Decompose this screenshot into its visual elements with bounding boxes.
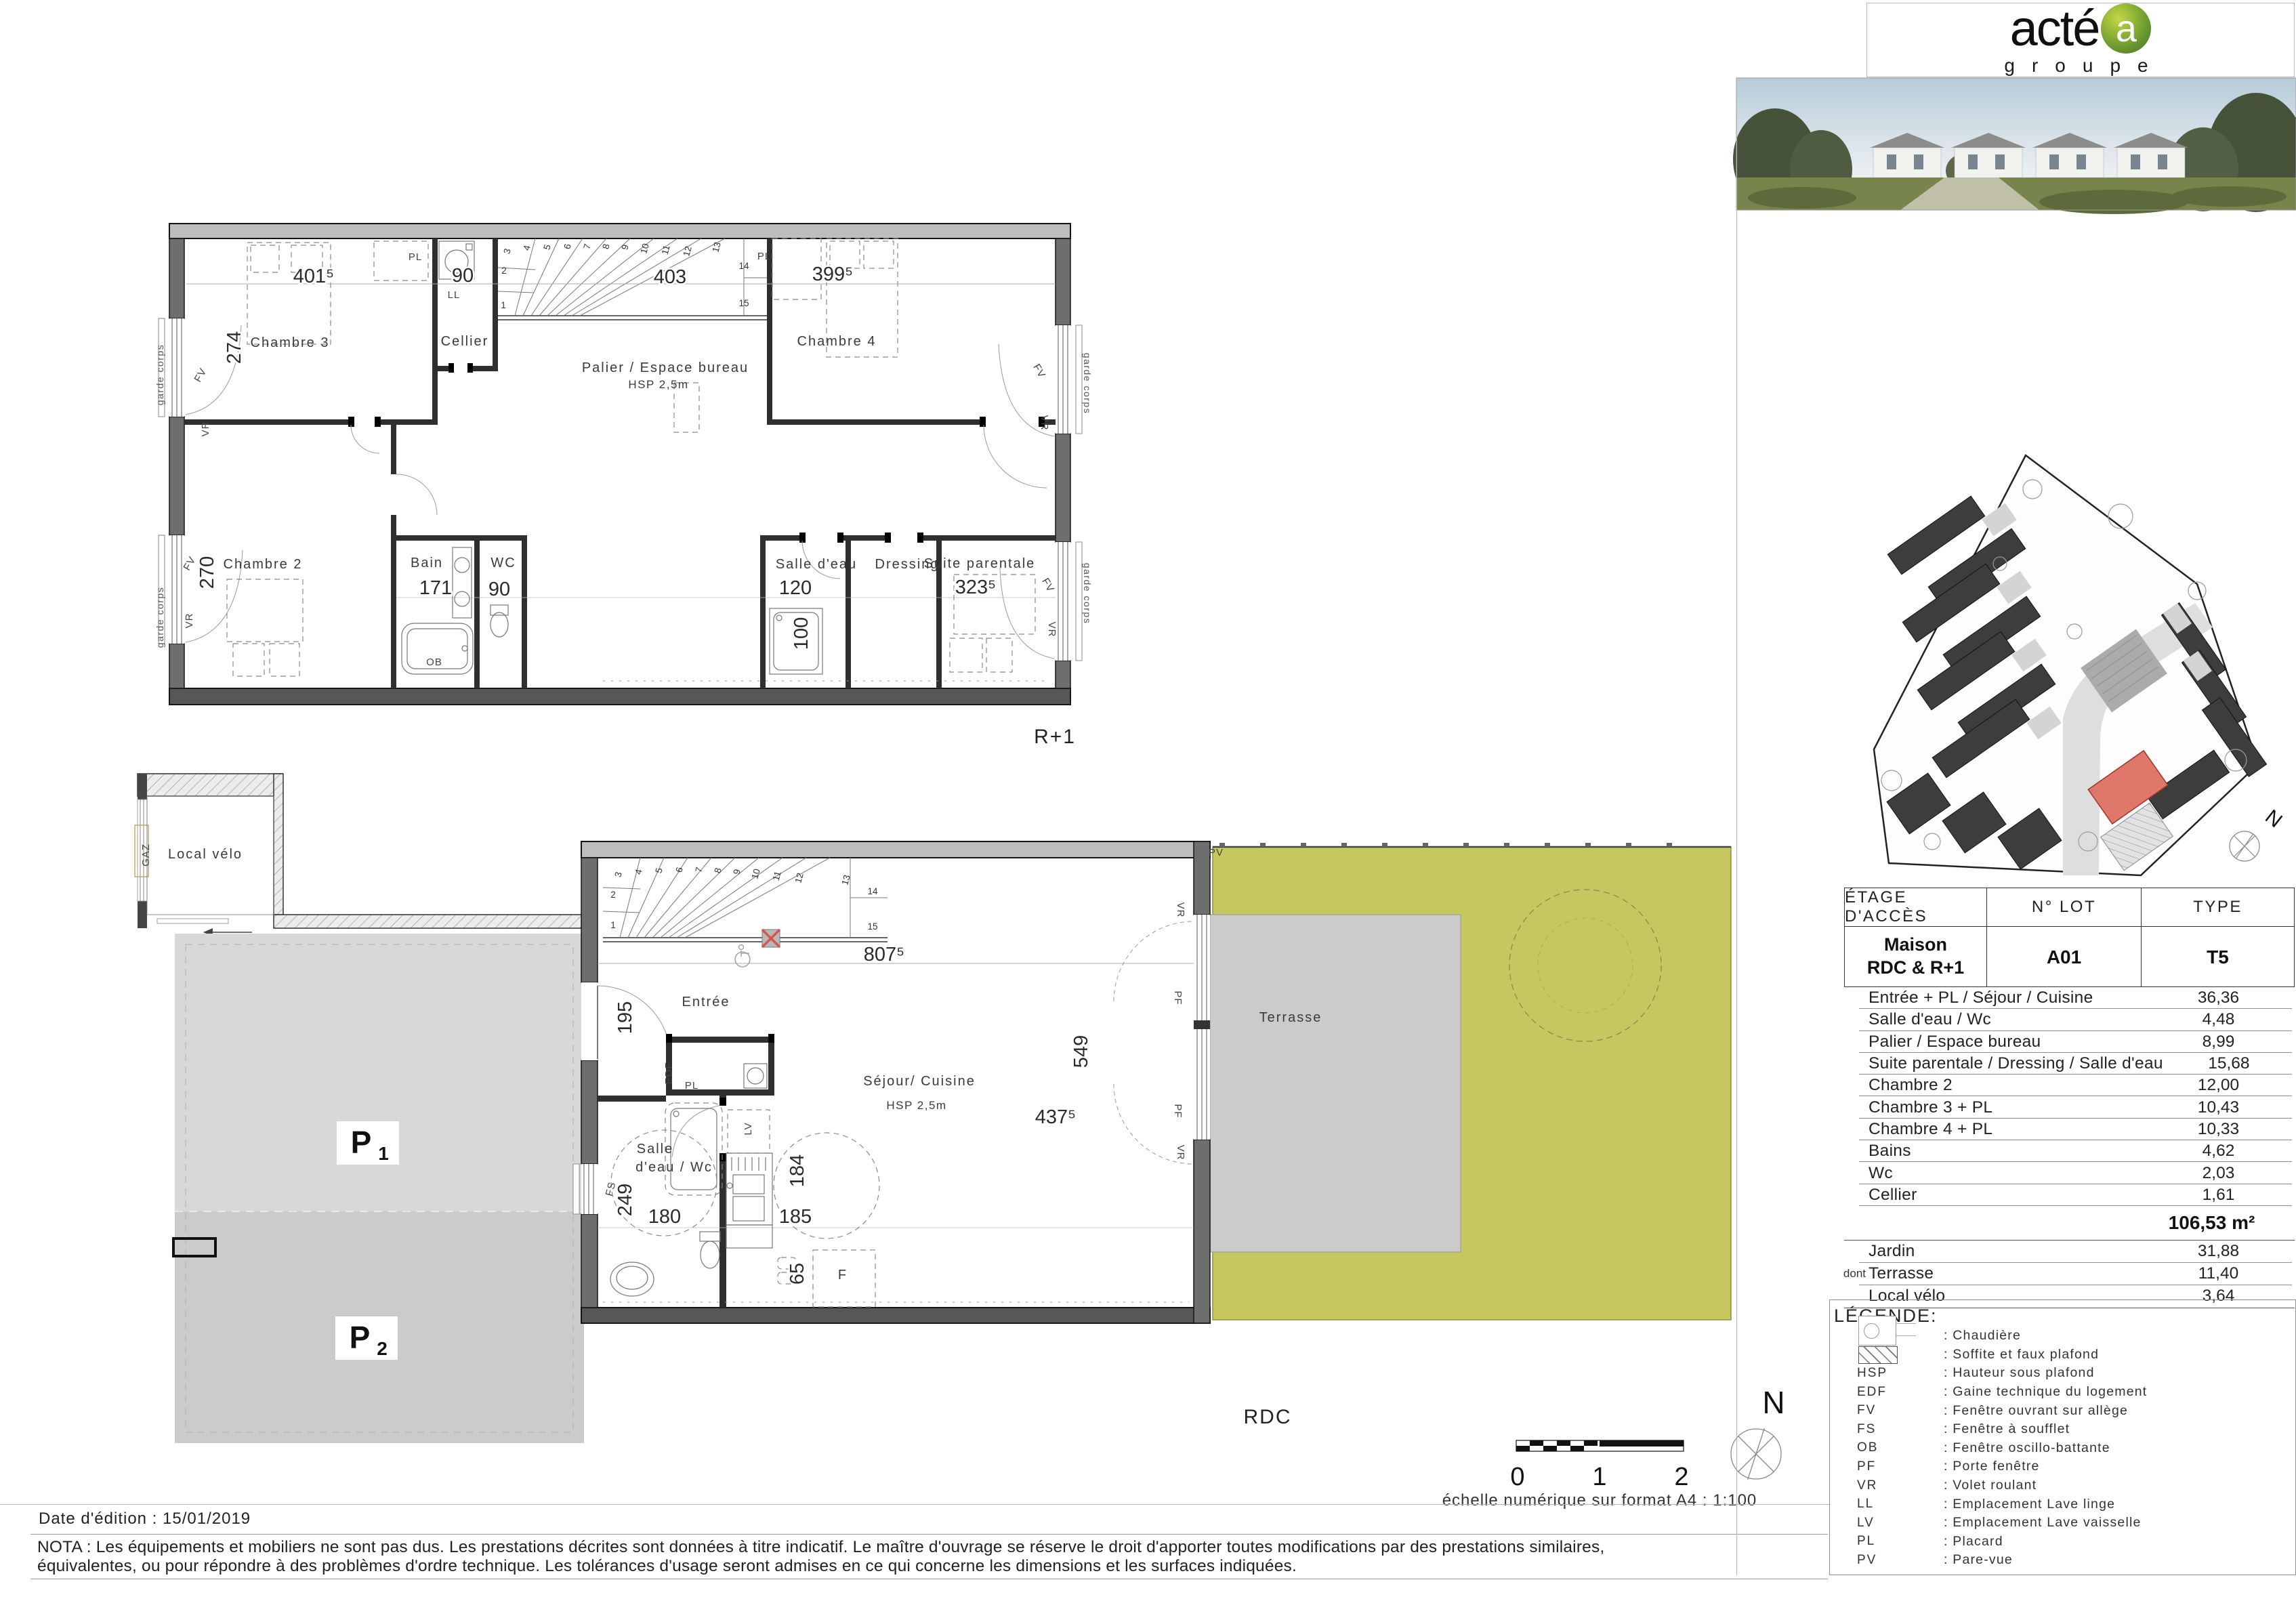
legend-row: PF: Porte fenêtre [1830, 1457, 2295, 1476]
label-vr: VR [1175, 1145, 1186, 1161]
label-gardecorps: garde corps [1082, 563, 1093, 624]
room-label: Chambre 4 + PL [1869, 1120, 2142, 1139]
label-ob: OB [426, 657, 442, 668]
legend-desc: : Volet roulant [1944, 1478, 2037, 1493]
label-sdewc2: d'eau / Wc [635, 1160, 713, 1175]
label-d274: 274 [224, 331, 245, 364]
project-photo [1733, 78, 2296, 214]
label-d3995: 399⁵ [812, 264, 853, 285]
room-label: Cellier [1869, 1186, 2142, 1205]
rdc-stair-number: 14 [867, 886, 878, 896]
label-d171: 171 [419, 577, 452, 599]
legend-code: EDF [1830, 1385, 1944, 1400]
legend-row: FS: Fenêtre à soufflet [1830, 1420, 2295, 1439]
total-surface: 106,53 m² [2129, 1212, 2295, 1234]
site-plan [1874, 455, 2267, 875]
label-wc: WC [490, 556, 516, 570]
r1-stair-number: 8 [600, 243, 611, 250]
label-d8075: 807⁵ [864, 944, 904, 965]
rdc-stair-number: 10 [749, 868, 761, 880]
outdoor-prefix: dont [1841, 1267, 1866, 1281]
legend-row: LL: Emplacement Lave linge [1830, 1495, 2295, 1514]
room-label: Suite parentale / Dressing / Salle d'eau [1869, 1054, 2163, 1073]
label-sdewc1: Salle [637, 1142, 673, 1157]
table-room-row: Chambre 4 + PL10,33 [1844, 1119, 2295, 1140]
room-surface: 10,33 [2142, 1120, 2295, 1139]
chaudiere-marker [762, 930, 780, 947]
label-p2: 2 [377, 1338, 388, 1359]
logo-wordmark: acté [2010, 3, 2100, 54]
surface-table: ÉTAGE D'ACCÈS N° LOT TYPE Maison RDC & R… [1844, 888, 2295, 1308]
r1-stairs [498, 238, 767, 320]
label-gaz: GAZ [140, 844, 152, 867]
label-d180: 180 [648, 1206, 681, 1228]
terrasse-area [1210, 915, 1461, 1252]
r1-stair-number: 2 [501, 266, 507, 276]
table-rooms: Entrée + PL / Séjour / Cuisine36,36Salle… [1844, 987, 2295, 1206]
header-type: TYPE [2142, 888, 2294, 926]
parking-p1 [175, 934, 584, 1211]
outdoor-surface: 11,40 [2142, 1264, 2295, 1283]
room-surface: 15,68 [2163, 1054, 2295, 1073]
rdc-stair-number: 1 [610, 920, 616, 930]
legend-row: OB: Fenêtre oscillo-battante [1830, 1439, 2295, 1458]
lot-cell: A01 [1987, 927, 2142, 986]
label-pl: PL [757, 251, 771, 262]
legend-row: PL: Placard [1830, 1533, 2295, 1552]
access-line2: RDC & R+1 [1867, 957, 1964, 980]
legend-desc: : Placard [1944, 1534, 2003, 1549]
legend-code: PF [1830, 1459, 1944, 1474]
outdoor-label: Jardin [1869, 1242, 2142, 1261]
table-room-row: Bains4,62 [1844, 1140, 2295, 1162]
label-r1_title: R+1 [1034, 726, 1076, 748]
rdc-stair-number: 7 [693, 866, 704, 873]
room-label: Bains [1869, 1142, 2142, 1161]
r1-stair-number: 1 [501, 300, 506, 310]
label-salledeau: Salle d'eau [776, 557, 857, 572]
room-label: Chambre 2 [1869, 1076, 2142, 1095]
label-d90b: 90 [488, 579, 510, 600]
table-outdoor-row: dontTerrasse11,40 [1844, 1263, 2295, 1285]
label-edf: EDF [663, 1062, 675, 1085]
legend-box: LÉGENDE: : Chaudière: Soffite et faux pl… [1829, 1299, 2296, 1575]
r1-fixtures [402, 241, 822, 674]
label-vr: VR [1175, 902, 1186, 918]
rdc-stair-number: 8 [712, 867, 723, 874]
table-room-row: Suite parentale / Dressing / Salle d'eau… [1844, 1053, 2295, 1075]
rdc-stair-number: 4 [633, 868, 644, 876]
room-label: Entrée + PL / Séjour / Cuisine [1869, 988, 2142, 1007]
label-vr: VR [200, 421, 211, 437]
legend-desc: : Soffite et faux plafond [1944, 1347, 2099, 1362]
r1-stair-number: 11 [660, 244, 672, 255]
table-room-row: Chambre 3 + PL10,43 [1844, 1096, 2295, 1118]
rdc-stair-number: 12 [793, 872, 805, 884]
label-fv: FV [192, 366, 209, 384]
label-n: N [1762, 1385, 1784, 1420]
parking-area [173, 934, 584, 1443]
label-p1: 1 [378, 1143, 389, 1164]
legend-desc: : Emplacement Lave linge [1944, 1497, 2115, 1512]
label-caption: échelle numérique sur format A4 : 1:100 [1442, 1491, 1757, 1510]
table-room-row: Cellier1,61 [1844, 1184, 2295, 1206]
legend-code: VR [1830, 1478, 1944, 1493]
label-d90: 90 [452, 265, 474, 287]
window-right-upper [1056, 325, 1082, 434]
table-header-row: ÉTAGE D'ACCÈS N° LOT TYPE [1844, 888, 2295, 926]
label-pf: PF [1172, 1104, 1184, 1118]
table-room-row: Entrée + PL / Séjour / Cuisine36,36 [1844, 987, 2295, 1009]
nota-line2: équivalentes, ou pour répondre à des pro… [37, 1557, 1297, 1576]
label-d65: 65 [787, 1263, 808, 1285]
rdc-bay-windows [1114, 915, 1210, 1164]
label-gardecorps: garde corps [1082, 353, 1093, 414]
room-surface: 12,00 [2142, 1076, 2295, 1095]
room-surface: 10,43 [2142, 1098, 2295, 1117]
label-terrasse: Terrasse [1259, 1010, 1322, 1025]
r1-stair-number: 15 [738, 298, 749, 308]
label-chambre4: Chambre 4 [797, 334, 877, 349]
r1-stair-number: 6 [562, 243, 572, 250]
table-total-row: 106,53 m² [1844, 1206, 2295, 1240]
r1-stair-number: 4 [521, 244, 533, 252]
label-chambre3: Chambre 3 [251, 335, 330, 350]
rdc-stair-number: 11 [771, 870, 783, 881]
panel-separator [1736, 78, 1737, 1575]
label-rdc_title: RDC [1244, 1406, 1292, 1428]
table-outdoor-row: Jardin31,88 [1844, 1241, 2295, 1263]
legend-desc: : Porte fenêtre [1944, 1459, 2040, 1474]
legend-desc: : Gaine technique du logement [1944, 1384, 2147, 1400]
legend-row: : Soffite et faux plafond [1830, 1346, 2295, 1365]
r1-stair-number: 14 [738, 261, 749, 271]
legend-desc: : Emplacement Lave vaisselle [1944, 1515, 2142, 1531]
nota-line1: NOTA : Les équipements et mobiliers ne s… [37, 1538, 1604, 1557]
legend-desc: : Fenêtre à soufflet [1944, 1421, 2070, 1437]
legend-code: LL [1830, 1497, 1944, 1512]
table-room-row: Chambre 212,00 [1844, 1075, 2295, 1096]
legend-row: HSP: Hauteur sous plafond [1830, 1364, 2295, 1383]
room-surface: 8,99 [2142, 1033, 2295, 1052]
label-d4015: 401⁵ [293, 266, 334, 287]
pv-fence [1213, 843, 1731, 847]
r1-floor-plan [159, 224, 1082, 705]
rdc-stair-number: 3 [612, 871, 623, 878]
header-lot: N° LOT [1987, 888, 2142, 926]
chaudiere-icon [1858, 1316, 1896, 1346]
room-surface: 4,62 [2142, 1142, 2295, 1161]
label-ll: LL [448, 289, 461, 301]
legend-row: EDF: Gaine technique du logement [1830, 1383, 2295, 1402]
legend-desc: : Hauteur sous plafond [1944, 1365, 2095, 1381]
label-p: P [351, 1125, 372, 1160]
site-compass [2230, 831, 2259, 861]
legend-code: FV [1830, 1403, 1944, 1418]
rdc-stair-number: 9 [731, 868, 742, 875]
window-right-lower [1056, 542, 1082, 661]
label-d549: 549 [1070, 1035, 1092, 1068]
label-d403: 403 [654, 266, 686, 288]
legend-code: HSP [1830, 1366, 1944, 1381]
access-cell: Maison RDC & R+1 [1845, 927, 1987, 986]
label-two: 2 [1674, 1463, 1688, 1491]
legend-desc: : Fenêtre ouvrant sur allège [1944, 1403, 2128, 1419]
label-entree: Entrée [682, 995, 730, 1009]
label-hsp: HSP 2,5m [628, 378, 688, 391]
table-room-row: Wc2,03 [1844, 1162, 2295, 1184]
label-pl: PL [685, 1080, 698, 1091]
label-lv: LV [743, 1122, 754, 1135]
label-localvelo: Local vélo [168, 847, 243, 862]
legend-code: FS [1830, 1422, 1944, 1437]
r1-stair-number: 7 [581, 243, 592, 250]
legend-row: VR: Volet roulant [1830, 1476, 2295, 1495]
label-one: 1 [1592, 1463, 1606, 1491]
r1-stair-number: 12 [681, 245, 693, 257]
label-gardecorps: garde corps [154, 587, 165, 648]
legend-code: LV [1830, 1516, 1944, 1531]
footer-divider-1 [0, 1504, 1829, 1505]
label-zero: 0 [1510, 1463, 1524, 1491]
r1-stair-number: 10 [638, 243, 650, 255]
legend-desc: : Chaudière [1944, 1328, 2021, 1344]
room-label: Salle d'eau / Wc [1869, 1010, 2142, 1029]
rdc-stair-number: 2 [610, 890, 616, 900]
plan-sheet: 401⁵90403399⁵27427017190120323⁵100Chambr… [0, 0, 2296, 1603]
legend-row: FV: Fenêtre ouvrant sur allège [1830, 1401, 2295, 1420]
label-d185: 185 [779, 1206, 812, 1228]
label-pl: PL [409, 251, 422, 263]
outdoor-surface: 31,88 [2142, 1242, 2295, 1261]
label-d3235: 323⁵ [955, 577, 996, 598]
legend-row: : Chaudière [1830, 1327, 2295, 1346]
label-palier: Palier / Espace bureau [582, 360, 749, 375]
room-surface: 2,03 [2142, 1164, 2295, 1183]
legend-items: : Chaudière: Soffite et faux plafondHSP:… [1830, 1327, 2295, 1570]
label-vr: VR [1046, 622, 1058, 638]
label-d120: 120 [779, 577, 812, 599]
r1-stair-number: 13 [710, 241, 722, 253]
soffite-icon [1858, 1346, 1898, 1364]
legend-desc: : Fenêtre oscillo-battante [1944, 1440, 2110, 1456]
label-cellier: Cellier [441, 334, 489, 349]
type-cell: T5 [2142, 927, 2294, 986]
logo-subtitle: groupe [1996, 55, 2165, 77]
footer-divider-2 [30, 1534, 1828, 1535]
label-fv: FV [1039, 576, 1056, 594]
actea-logo: acté a groupe [1866, 3, 2295, 77]
outdoor-label: Terrasse [1869, 1264, 2142, 1283]
label-d270: 270 [196, 556, 218, 589]
label-p: P [350, 1320, 371, 1355]
label-sejour: Séjour/ Cuisine [863, 1074, 976, 1089]
label-bain: Bain [411, 556, 443, 570]
room-label: Palier / Espace bureau [1869, 1033, 2142, 1052]
label-chambre2: Chambre 2 [224, 557, 303, 572]
legend-row: LV: Emplacement Lave vaisselle [1830, 1514, 2295, 1533]
rdc-stair-number: 5 [653, 867, 664, 874]
rdc-stairs [603, 858, 888, 942]
r1-stair-number: 5 [541, 243, 552, 251]
label-pf: PF [1172, 991, 1184, 1005]
rdc-stair-number: 15 [867, 921, 877, 932]
label-f: F [838, 1268, 848, 1283]
legend-desc: : Pare-vue [1944, 1552, 2013, 1568]
room-surface: 4,48 [2142, 1010, 2295, 1029]
label-suite: Suite parentale [924, 556, 1036, 571]
legend-code: PV [1830, 1553, 1944, 1568]
label-d4375: 437⁵ [1035, 1106, 1076, 1128]
label-d184: 184 [787, 1154, 808, 1187]
label-d195: 195 [614, 1001, 636, 1034]
access-line1: Maison [1884, 934, 1947, 957]
table-access-row: Maison RDC & R+1 A01 T5 [1844, 926, 2295, 987]
r1-stair-number: 9 [619, 243, 630, 251]
logo-badge-icon: a [2101, 3, 2151, 54]
r1-stair-number: 3 [501, 247, 512, 255]
fs-window [573, 1164, 598, 1214]
label-hsp: HSP 2,5m [886, 1099, 946, 1112]
label-vr: VR [1039, 415, 1050, 431]
legend-code: OB [1830, 1440, 1944, 1455]
room-label: Chambre 3 + PL [1869, 1098, 2142, 1117]
label-d100: 100 [791, 617, 812, 650]
footer-divider-3 [30, 1579, 1828, 1579]
legend-code: PL [1830, 1534, 1944, 1549]
room-label: Wc [1869, 1164, 2142, 1183]
room-surface: 1,61 [2142, 1186, 2295, 1205]
north-compass [1731, 1428, 1781, 1480]
table-room-row: Salle d'eau / Wc4,48 [1844, 1009, 2295, 1030]
label-fv: FV [1030, 362, 1047, 380]
rdc-stair-number: 6 [673, 866, 684, 873]
label-d249: 249 [614, 1184, 636, 1216]
scale-bar [1516, 1440, 1684, 1451]
label-gardecorps: garde corps [154, 344, 165, 405]
label-n: N [2261, 806, 2286, 832]
room-surface: 36,36 [2142, 988, 2295, 1007]
header-etage: ÉTAGE D'ACCÈS [1845, 888, 1987, 926]
legend-row: PV: Pare-vue [1830, 1551, 2295, 1570]
table-outdoor: Jardin31,88dontTerrasse11,40Local vélo3,… [1844, 1240, 2295, 1308]
edition-date: Date d'édition : 15/01/2019 [39, 1510, 251, 1528]
label-vr: VR [184, 613, 195, 629]
table-room-row: Palier / Espace bureau8,99 [1844, 1031, 2295, 1053]
label-pv: PV [1209, 847, 1224, 858]
